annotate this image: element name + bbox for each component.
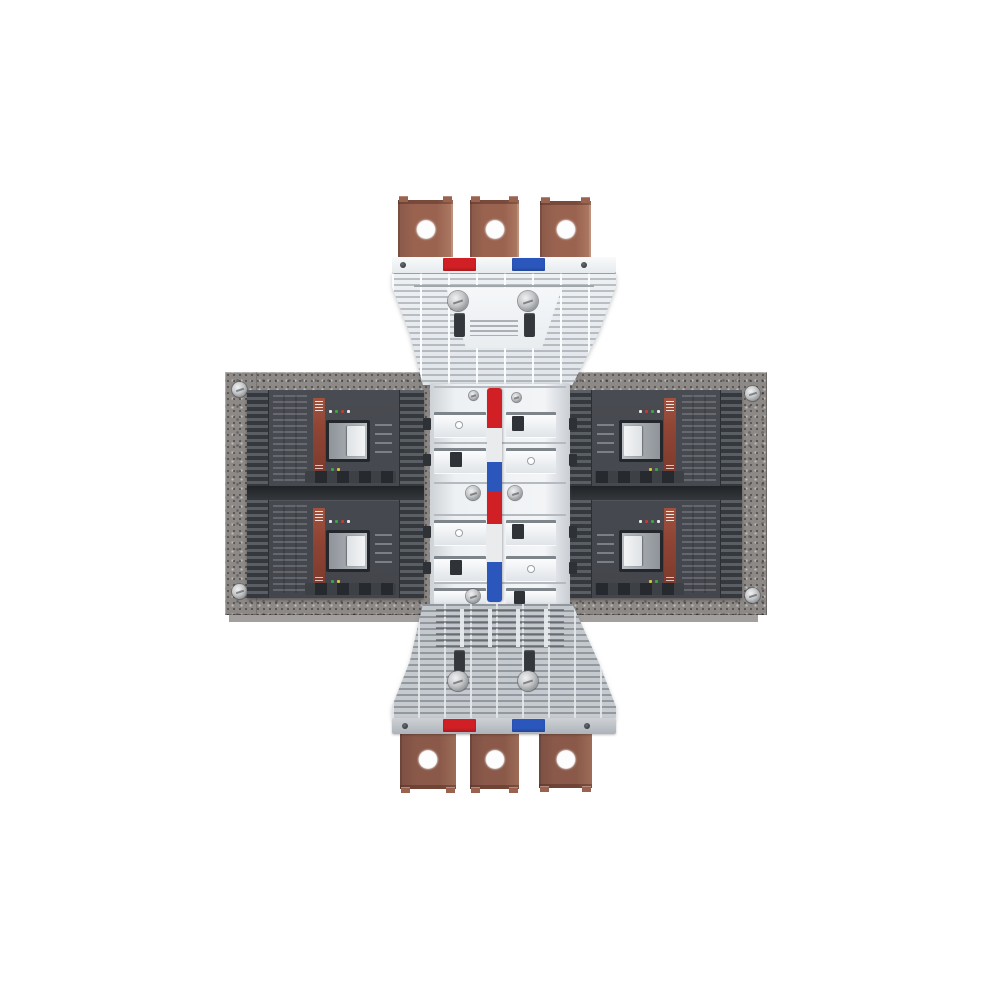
toggle-well [329,423,367,459]
copper-terminal-bottom-2 [470,732,519,789]
breaker-block-right [567,390,742,598]
terminal-cover [595,471,684,483]
plate-screw [232,382,247,397]
indicator-row [639,520,660,523]
bolt-hole [485,750,504,769]
breaker-toggle-frame [619,530,663,572]
breaker-label-strip [313,508,325,590]
bolt-hole [416,220,435,239]
center-busbar-column [430,384,570,604]
dark-slot [450,452,462,467]
breaker-block-left [247,390,424,598]
toggle-well [622,533,660,569]
bolt-hole [419,750,438,769]
spine-screw [512,393,521,402]
screw [402,723,408,729]
phase-marker-red-top [443,258,476,271]
terminal-cover [305,583,396,595]
stripe-segment-phase_red [487,388,502,428]
heatsink-fins [567,500,592,598]
breaker-label-strip [664,508,676,590]
screw [400,262,406,268]
bolt-hole [556,220,575,239]
adapter-screw [518,291,538,311]
rivet-dot [456,530,462,536]
phase-marker-blue-bottom [512,719,545,732]
rivet-dot [528,566,534,572]
circuit-breaker-1 [247,390,424,486]
louver-slat [434,412,486,437]
bolt-hole [556,750,575,769]
copper-terminal-top-1 [398,200,453,259]
block-divider [247,486,424,500]
breaker-toggle-handle [347,536,364,566]
circuit-breaker-4 [567,500,742,598]
plate-screw [232,584,247,599]
louver-slat [506,448,556,473]
breaker-label-strip [664,398,676,478]
spine-screw [466,486,480,500]
molded-markings [682,505,716,593]
connector-slot [454,650,465,672]
terminal-nub [423,562,431,574]
spine-screw [508,486,522,500]
bolt-hole [485,220,504,239]
screw [581,262,587,268]
heatsink-fins [567,390,592,486]
breaker-toggle-frame [326,420,370,462]
molded-markings [273,505,307,593]
screw [584,723,590,729]
plate-screw [745,588,760,603]
terminal-nub [569,562,577,574]
rating-markings [597,534,614,564]
terminal-nub [569,526,577,538]
phase-stripe [487,388,502,602]
top-adapter-bar [392,257,616,273]
adapter-ledge [414,285,594,287]
stripe-segment-phase_white [487,428,502,462]
rating-markings [597,424,614,454]
connector-slot [524,650,535,672]
indicator-row [329,520,350,523]
adapter-screw [448,671,468,691]
rating-markings [375,424,392,454]
toggle-well [622,423,660,459]
bottom-adapter-bar [392,718,616,734]
stripe-segment-phase_blue [487,462,502,492]
rivet-dot [456,422,462,428]
dark-slot [512,416,524,431]
plate-screw [745,386,760,401]
rivet-dot [528,458,534,464]
rating-markings [375,534,392,564]
breaker-toggle-handle [624,536,641,566]
copper-terminal-bottom-3 [539,732,592,788]
dark-slot [514,591,525,604]
breaker-toggle-handle [624,426,641,456]
breaker-label-strip [313,398,325,478]
stripe-segment-phase_white [487,524,502,562]
molded-markings [273,395,307,481]
indicator-row [329,410,350,413]
louver-slat [434,520,486,545]
adapter-screw [518,671,538,691]
toggle-well [329,533,367,569]
terminal-nub [423,418,431,430]
terminal-cover [305,471,396,483]
bottom-busbar-adapter [392,604,616,718]
top-adapter-vented-body [392,272,616,385]
heatsink-fins [720,390,742,486]
copper-terminal-top-2 [470,200,519,259]
top-busbar-adapter [392,272,616,385]
block-divider [567,486,742,500]
vent-grid [436,609,564,647]
bottom-adapter-vented-body [392,604,616,718]
heatsink-fins [399,500,424,598]
terminal-nub [569,418,577,430]
phase-marker-blue-top [512,258,545,271]
heatsink-fins [720,500,742,598]
breaker-toggle-frame [326,530,370,572]
stripe-segment-phase_blue [487,562,502,602]
terminal-nub [423,526,431,538]
vent-strip [470,320,518,336]
spine-screw [466,589,480,603]
dark-slot [450,560,462,575]
indicator-row [639,410,660,413]
connector-slot [454,313,465,337]
stripe-segment-phase_red [487,492,502,524]
copper-terminal-bottom-1 [400,732,456,789]
product-photo-busbar-adapter-assembly [0,0,1000,1000]
louver-slat [506,556,556,581]
terminal-nub [423,454,431,466]
heatsink-fins [247,500,269,598]
terminal-nub [569,454,577,466]
terminal-cover [595,583,684,595]
spine-screw [469,391,478,400]
dark-slot [512,524,524,539]
adapter-screw [448,291,468,311]
connector-slot [524,313,535,337]
copper-terminal-top-3 [540,201,591,259]
molded-markings [682,395,716,481]
heatsink-fins [399,390,424,486]
breaker-toggle-handle [347,426,364,456]
phase-marker-red-bottom [443,719,476,732]
circuit-breaker-3 [567,390,742,486]
circuit-breaker-2 [247,500,424,598]
breaker-toggle-frame [619,420,663,462]
heatsink-fins [247,390,269,486]
